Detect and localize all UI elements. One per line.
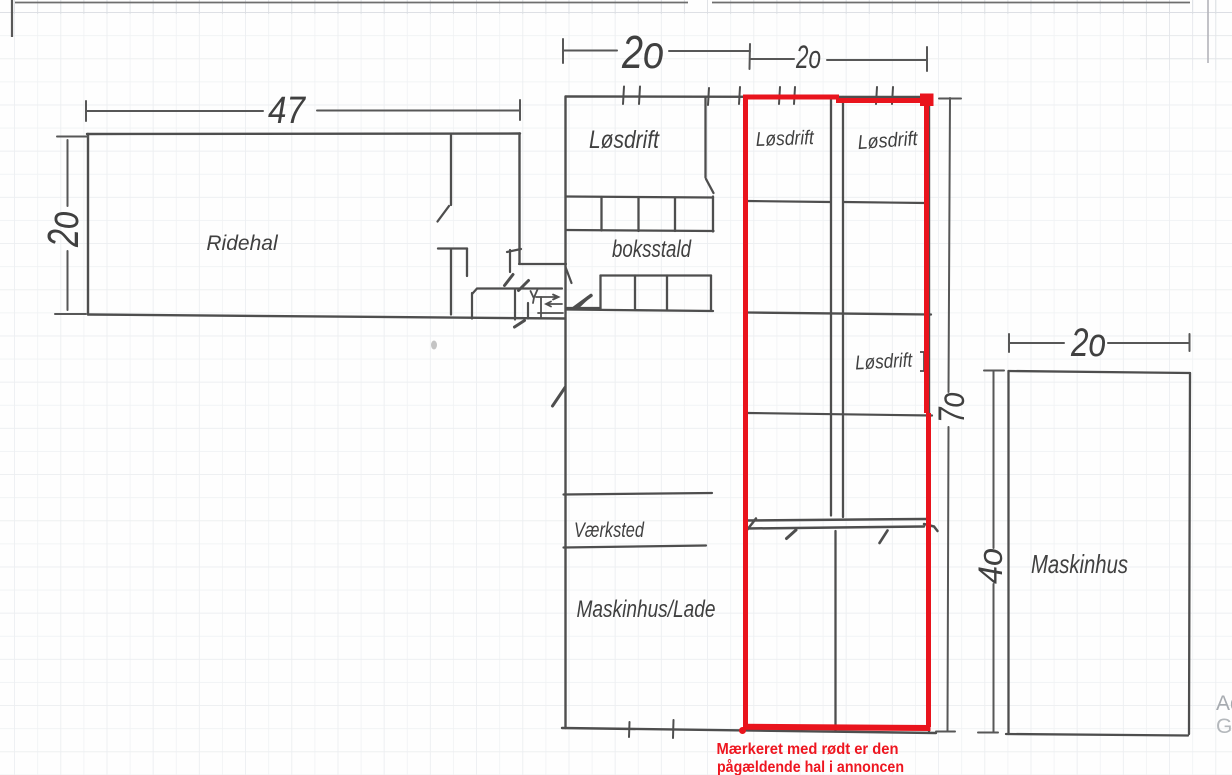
svg-text:Løsdrift: Løsdrift	[589, 126, 660, 154]
svg-text:4o: 4o	[972, 548, 1010, 584]
svg-text:Løsdrift: Løsdrift	[755, 127, 815, 151]
svg-text:Løsdrift: Løsdrift	[857, 128, 920, 154]
svg-text:2o: 2o	[1070, 321, 1106, 365]
svg-text:pågældende hal i annoncen: pågældende hal i annoncen	[717, 758, 904, 775]
svg-text:Maskinhus/Lade: Maskinhus/Lade	[577, 596, 716, 623]
svg-text:2o: 2o	[795, 39, 821, 75]
svg-text:2o: 2o	[39, 211, 88, 248]
svg-text:7o: 7o	[931, 392, 972, 423]
svg-text:Mærkeret med rødt er den: Mærkeret med rødt er den	[717, 741, 899, 758]
svg-text:47: 47	[268, 90, 307, 132]
svg-text:Ridehal: Ridehal	[206, 232, 279, 255]
svg-text:Ad: Ad	[1216, 692, 1232, 715]
svg-text:Værksted: Værksted	[574, 519, 645, 542]
svg-text:Løsdrift: Løsdrift	[855, 349, 914, 374]
svg-text:Maskinhus: Maskinhus	[1031, 549, 1128, 579]
svg-text:2o: 2o	[621, 26, 664, 78]
svg-text:Go: Go	[1216, 715, 1232, 738]
svg-text:boksstald: boksstald	[612, 236, 692, 263]
